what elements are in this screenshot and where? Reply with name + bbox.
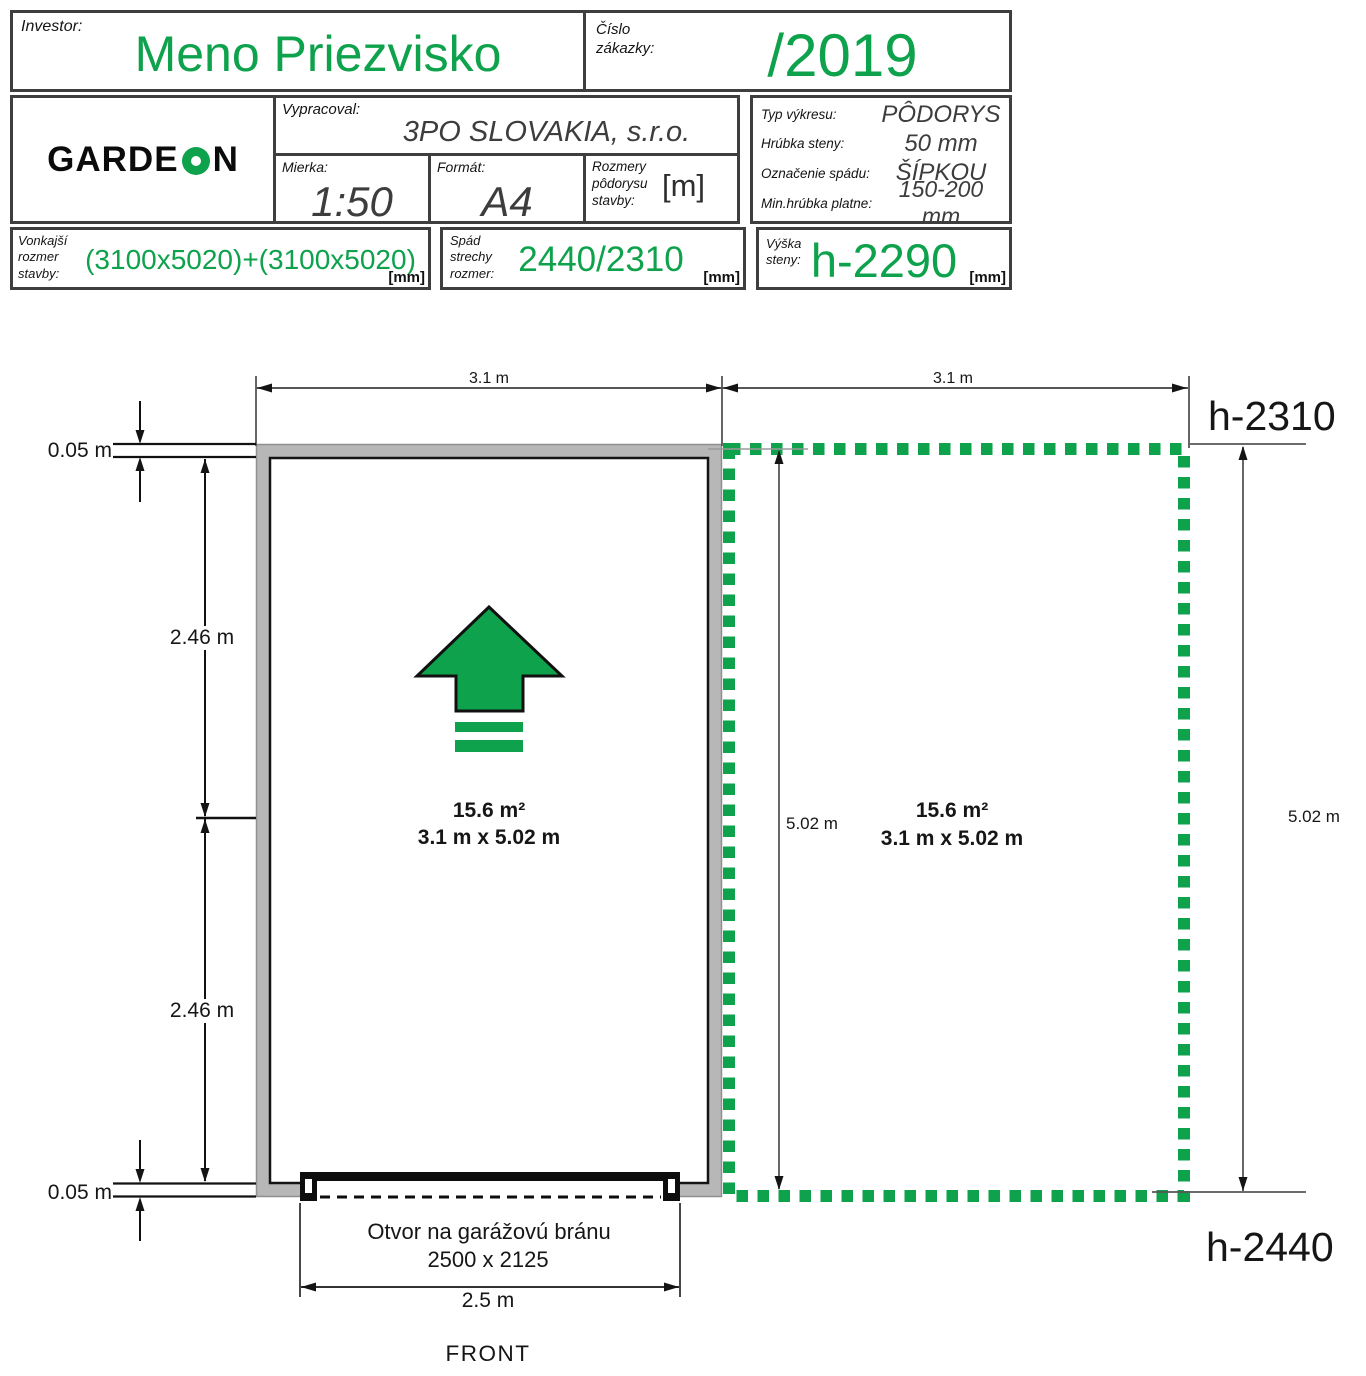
door-lintel [300, 1172, 680, 1181]
drawing-sheet: Investor: Meno Priezvisko Číslo zákazky:… [0, 0, 1366, 1376]
floor-plan-canvas [0, 0, 1366, 1376]
side-dim-lower-label: 2.46 m [166, 999, 238, 1023]
left-unit-area-label: 15.6 m² [453, 799, 525, 823]
garage-door-opening [300, 1172, 680, 1201]
height-bottom-right-label: h-2440 [1206, 1224, 1334, 1271]
door-size-label: 2500 x 2125 [427, 1247, 548, 1273]
door-dim-label: 2.5 m [458, 1289, 519, 1313]
top-dim-right-label: 3.1 m [933, 370, 973, 388]
top-dim-left-label: 3.1 m [469, 370, 509, 388]
depth-dim-right-label: 5.02 m [1288, 807, 1340, 827]
right-unit-size-label: 3.1 m x 5.02 m [881, 827, 1023, 851]
depth-dim-inner-label: 5.02 m [786, 814, 838, 834]
left-interior-dimension [196, 459, 256, 1182]
front-label: FRONT [446, 1341, 531, 1367]
wall-dim-top-label: 0.05 m [14, 439, 112, 463]
door-opening-label: Otvor na garážovú bránu [367, 1219, 610, 1245]
height-top-right-label: h-2310 [1208, 393, 1336, 440]
top-width-dimension [256, 376, 1189, 448]
wall-thickness-dimension-bottom [113, 1140, 256, 1241]
wall-dim-bottom-label: 0.05 m [14, 1181, 112, 1205]
right-depth-dimension [1152, 444, 1306, 1192]
right-unit-area-label: 15.6 m² [916, 799, 988, 823]
left-unit-size-label: 3.1 m x 5.02 m [418, 826, 560, 850]
wall-thickness-dimension-top [113, 401, 256, 502]
side-dim-upper-label: 2.46 m [166, 626, 238, 650]
